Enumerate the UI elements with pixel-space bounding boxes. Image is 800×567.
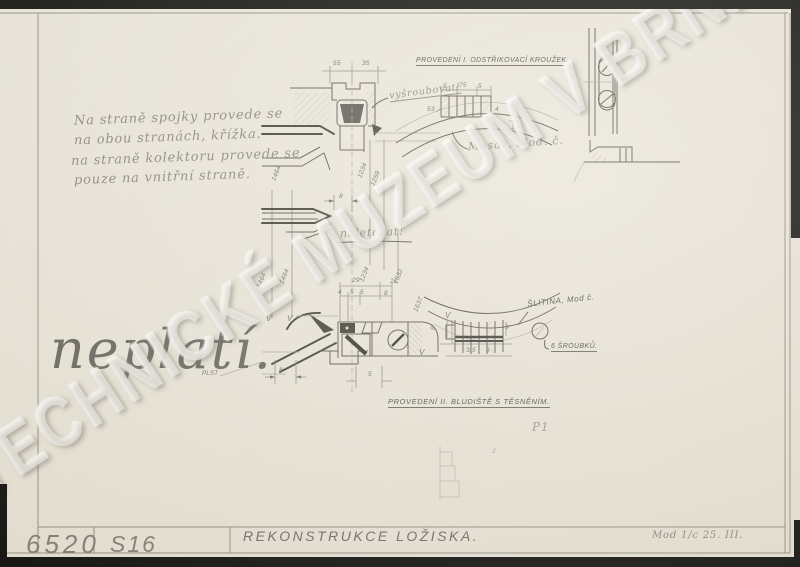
scan-edge-right-upper <box>791 0 800 238</box>
drawing-linework <box>0 0 800 567</box>
surface-mark: V <box>419 348 424 357</box>
solder-note: naletovat! <box>340 225 405 240</box>
scan-edge-right-lower <box>794 520 800 567</box>
dim-label: 55 <box>333 60 341 67</box>
dim-label: 4 <box>495 106 499 113</box>
dim-label: 9 <box>505 324 509 331</box>
heading-version1: PROVEDENÍ I. ODSTŘIKOVACÍ KROUŽEK. <box>416 57 569 66</box>
dim-label: 8 <box>279 367 283 374</box>
titleblock-sheet-code: S16 <box>110 531 157 558</box>
surface-mark: V <box>287 314 292 323</box>
screws-label: 6 ŠROUBKŮ. <box>551 343 597 352</box>
dim-label: 53 <box>427 106 435 113</box>
dim-label: 5 <box>478 83 482 90</box>
minor-marks <box>220 362 459 500</box>
invalid-mark: neplatí. <box>50 318 273 381</box>
heading-version2: PROVEDENÍ II. BLUDIŠTĚ S TĚSNĚNÍM. <box>388 397 550 408</box>
scan-edge-left-lower <box>0 484 7 567</box>
dim-label: 4 <box>338 289 342 296</box>
faint-mark: 2. <box>492 448 498 455</box>
surface-mark: V <box>266 314 271 323</box>
dim-label: 5 <box>368 371 372 378</box>
dim-label: 8 <box>339 193 343 200</box>
scan-edge-bottom <box>0 557 800 567</box>
dim-label: 5 <box>443 83 447 90</box>
dim-label: 8 <box>486 347 490 354</box>
scanned-drawing-page: Na straně spojky provede se na obou stra… <box>0 0 800 567</box>
p1-mark: P1 <box>532 420 549 434</box>
dim-label: 5 <box>360 289 364 296</box>
detail-top-right <box>574 28 680 182</box>
titleblock-title: REKONSTRUKCE LOŽISKA. <box>243 528 479 544</box>
dim-label: 3,5 <box>466 347 476 354</box>
dim-label: 75 <box>459 82 467 89</box>
titleblock-date-note: Mod 1/c 25. III. <box>652 530 743 541</box>
scan-edge-top <box>0 0 800 9</box>
drawing-sheet: Na straně spojky provede se na obou stra… <box>0 0 800 567</box>
section-version2 <box>262 282 512 388</box>
dim-label: 5 <box>350 289 354 296</box>
felt-label: PLST <box>202 371 218 377</box>
surface-mark: V <box>445 311 450 320</box>
dim-label: 8 <box>384 290 388 297</box>
titleblock-drawing-number: 6520 <box>26 529 100 560</box>
dim-label: 8 <box>430 326 437 330</box>
dim-label: 35 <box>362 60 370 67</box>
